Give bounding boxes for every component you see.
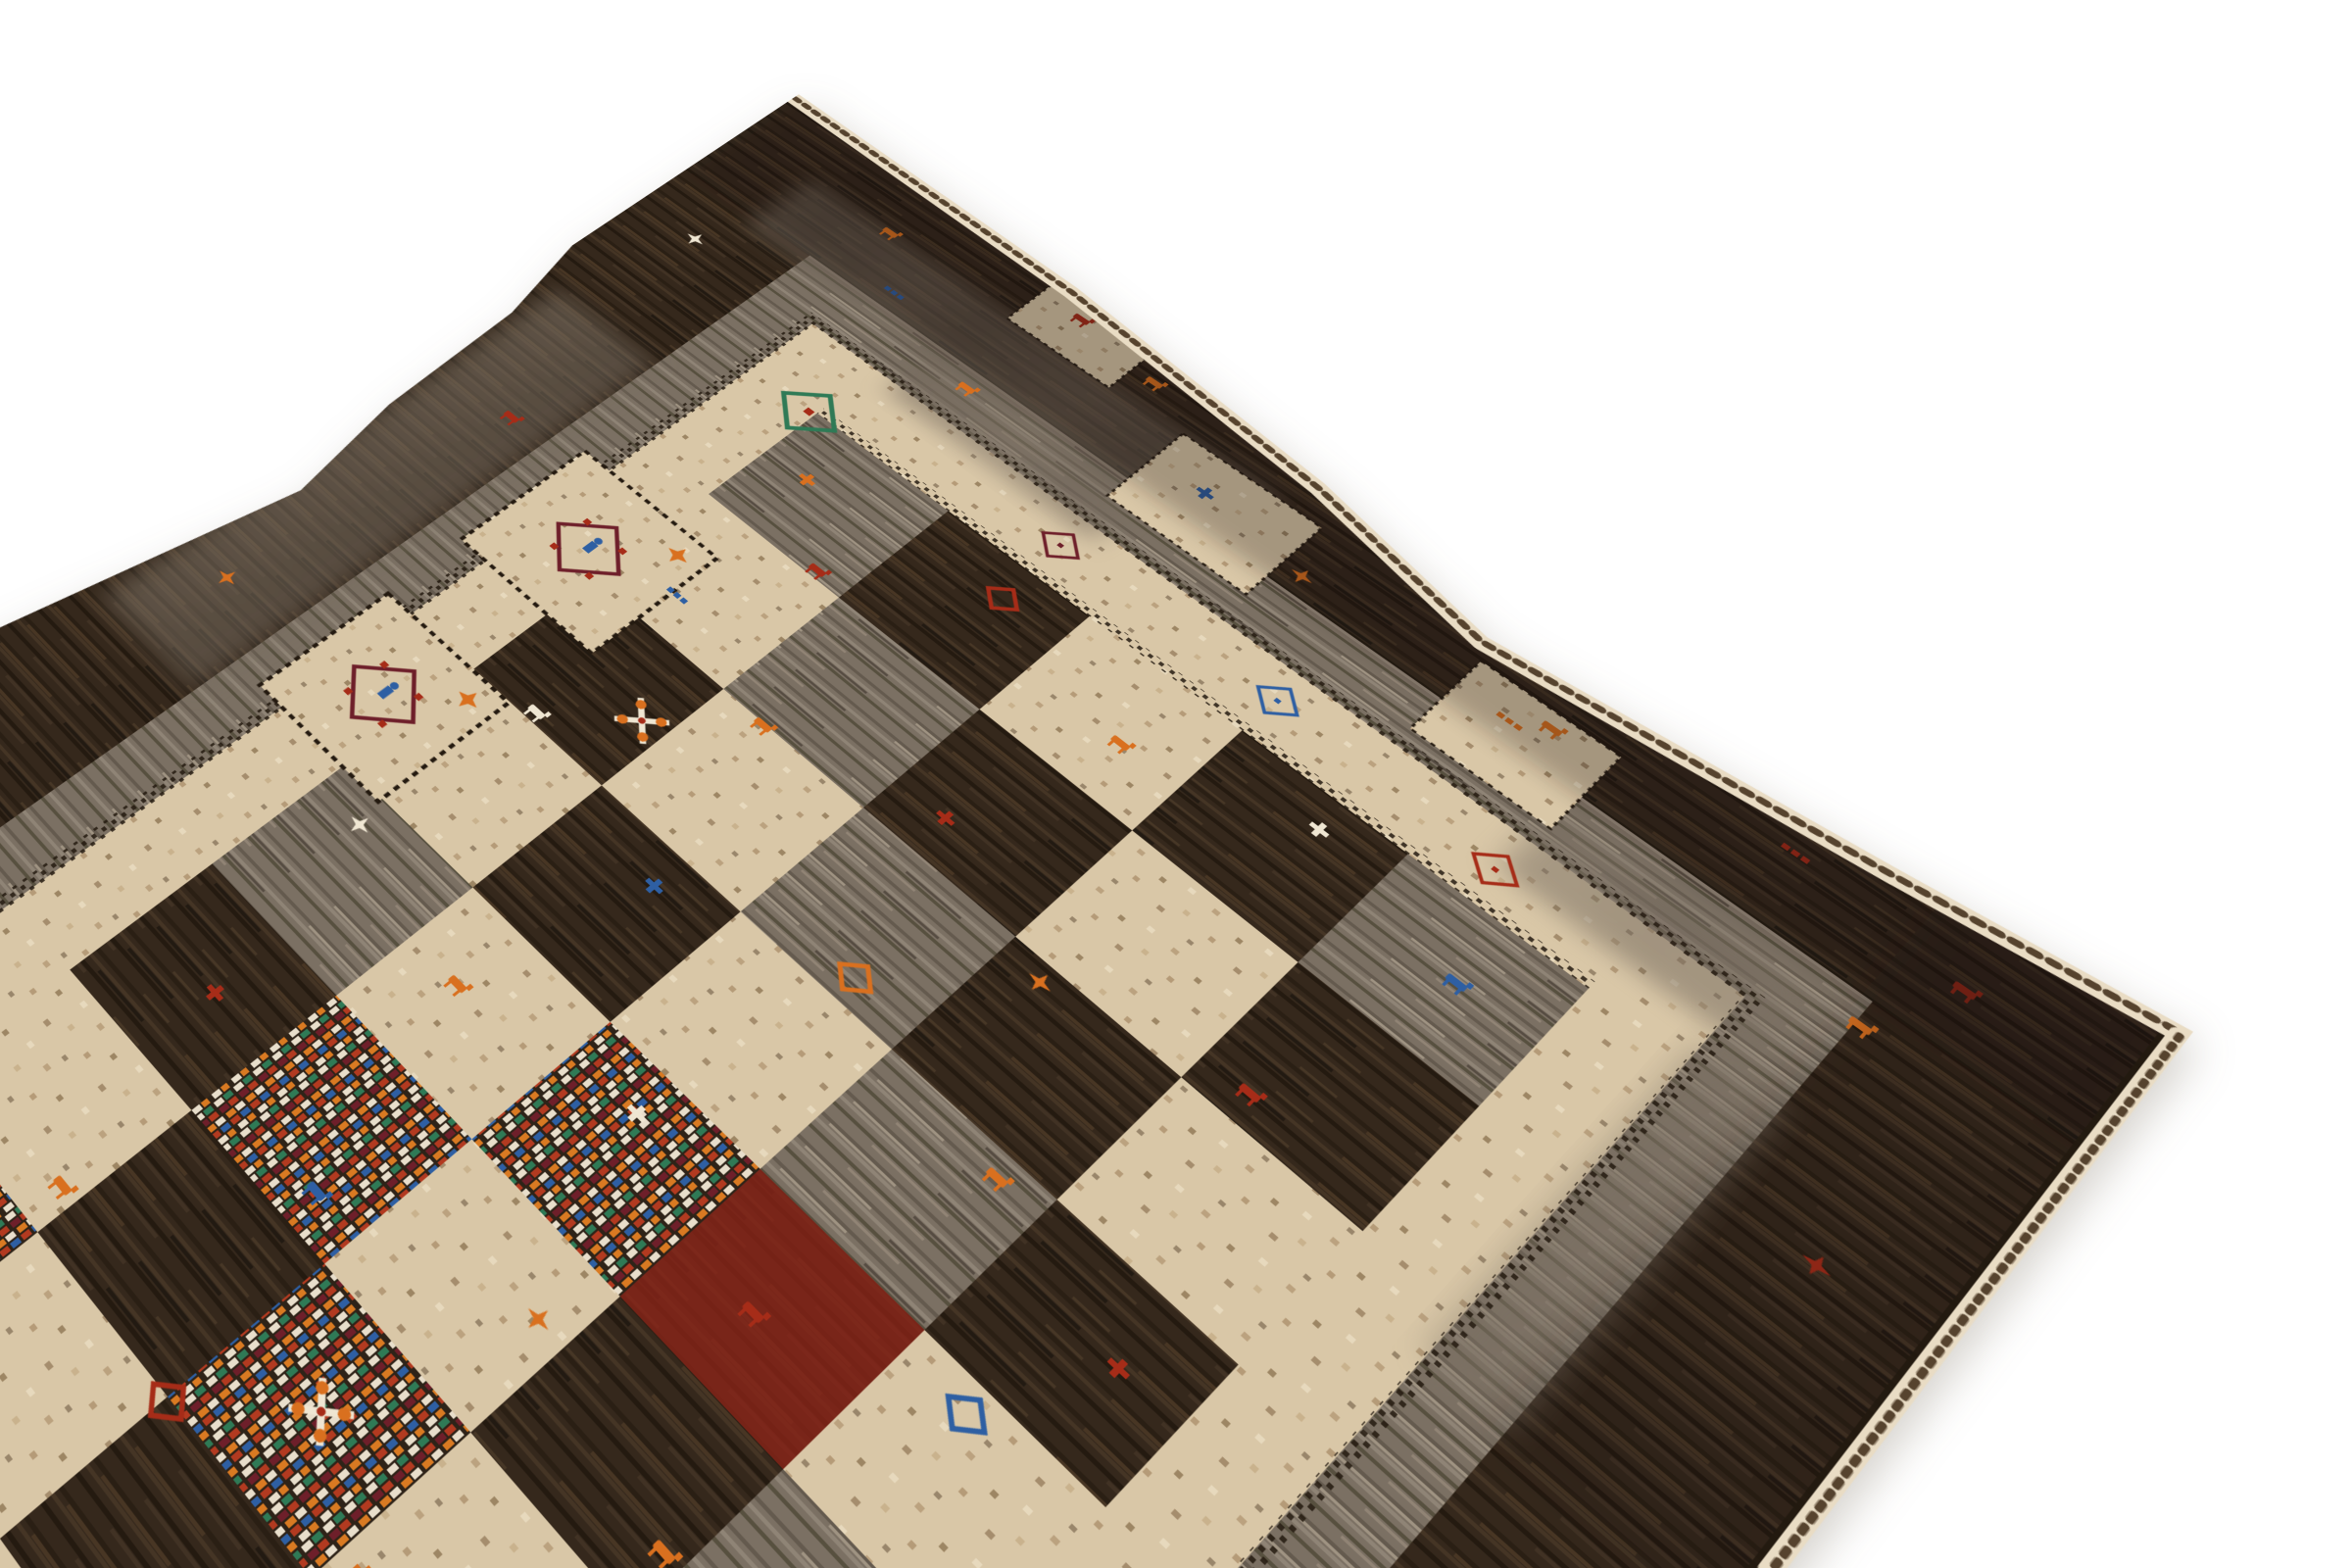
- rug-motif-part: [1707, 756, 1715, 762]
- rug-artwork: [0, 93, 2210, 1568]
- rug-wrap: [0, 0, 2352, 1568]
- photo-canvas: [0, 0, 2352, 1568]
- rug-photo: [0, 93, 2210, 1568]
